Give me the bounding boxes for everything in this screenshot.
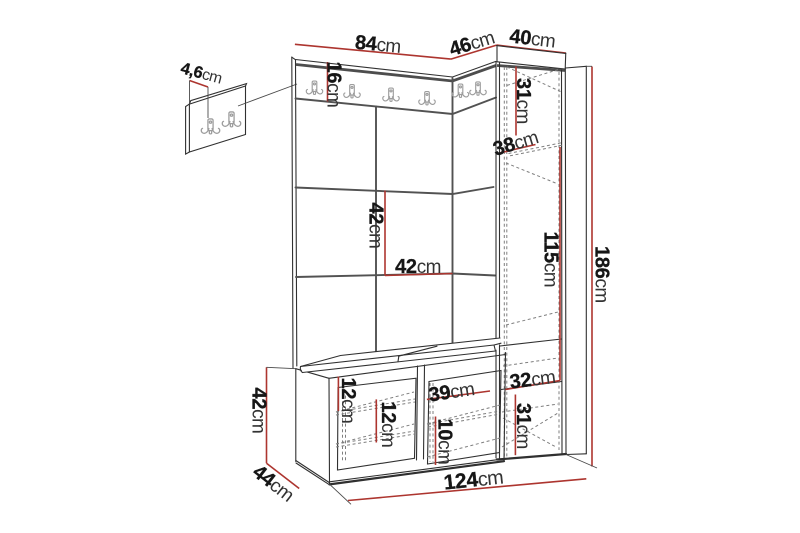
svg-text:12cm: 12cm <box>377 402 399 448</box>
svg-text:42cm: 42cm <box>248 388 270 434</box>
svg-text:12cm: 12cm <box>337 378 359 424</box>
svg-text:115cm: 115cm <box>540 232 562 288</box>
svg-text:31cm: 31cm <box>512 78 534 124</box>
svg-text:42cm: 42cm <box>395 256 441 278</box>
svg-text:42cm: 42cm <box>365 203 387 249</box>
svg-text:10cm: 10cm <box>433 419 455 465</box>
svg-text:186cm: 186cm <box>591 246 613 303</box>
svg-text:16cm: 16cm <box>323 62 345 108</box>
svg-text:84cm: 84cm <box>354 32 402 58</box>
svg-text:31cm: 31cm <box>512 403 534 449</box>
